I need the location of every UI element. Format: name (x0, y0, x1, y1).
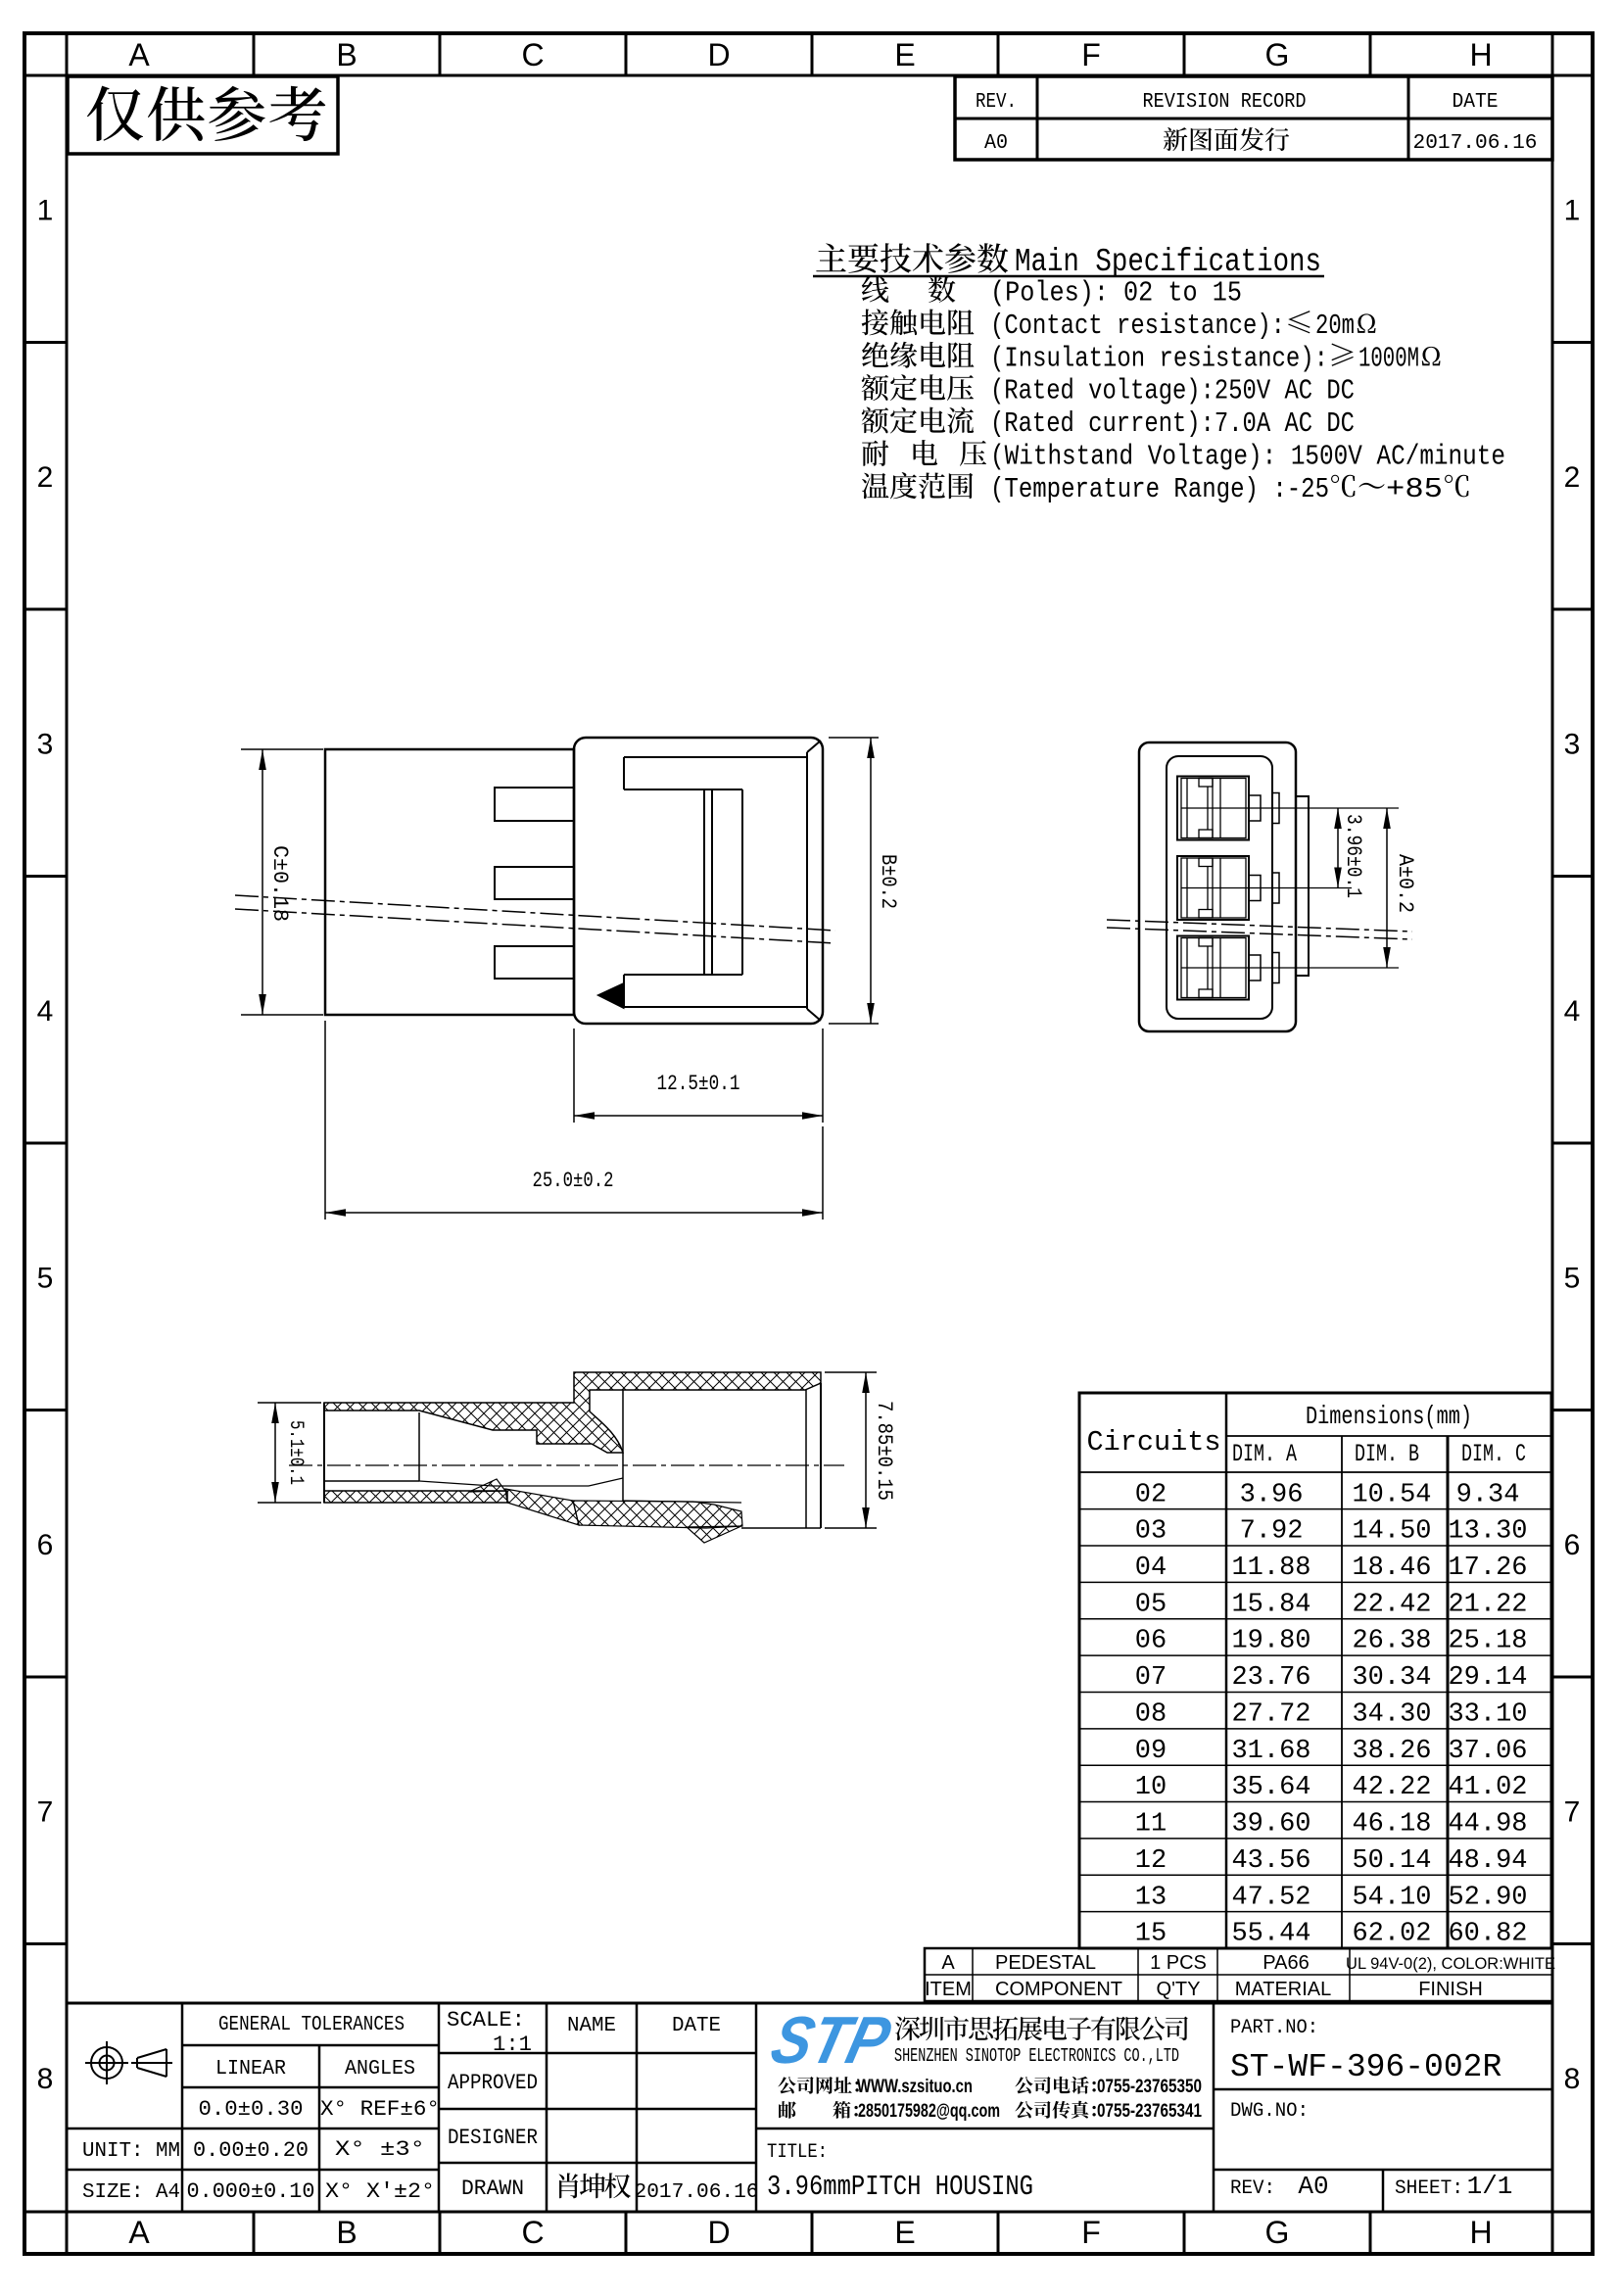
svg-text:2: 2 (37, 461, 54, 494)
svg-text:3: 3 (1564, 728, 1581, 760)
svg-text:G: G (1265, 37, 1290, 72)
svg-text:05: 05 (1135, 1590, 1167, 1619)
svg-text:2017.06.16: 2017.06.16 (1413, 132, 1538, 155)
svg-text:3.96: 3.96 (1240, 1480, 1304, 1509)
svg-text:7.85±0.15: 7.85±0.15 (872, 1401, 896, 1501)
svg-text:25.0±0.2: 25.0±0.2 (533, 1169, 614, 1193)
svg-text:5.1±0.1: 5.1±0.1 (284, 1420, 307, 1485)
svg-text:DWG.NO:: DWG.NO: (1230, 2100, 1309, 2123)
svg-text:62.02: 62.02 (1352, 1920, 1431, 1949)
svg-text:7.92: 7.92 (1240, 1517, 1304, 1547)
svg-text:C±0.18: C±0.18 (267, 845, 292, 922)
svg-text:23.76: 23.76 (1231, 1663, 1310, 1693)
svg-text:SCALE:: SCALE: (447, 2008, 525, 2033)
svg-text:NAME: NAME (567, 2015, 616, 2037)
svg-text:8: 8 (1564, 2063, 1581, 2095)
svg-text:1/1: 1/1 (1467, 2172, 1513, 2201)
svg-text:26.38: 26.38 (1352, 1627, 1431, 1656)
svg-text:COMPONENT: COMPONENT (995, 1979, 1122, 2000)
svg-text:A0: A0 (1298, 2172, 1328, 2201)
svg-text:5: 5 (37, 1262, 54, 1294)
svg-text:35.64: 35.64 (1231, 1773, 1310, 1802)
svg-text:44.98: 44.98 (1448, 1810, 1527, 1840)
svg-text:SHEET:: SHEET: (1395, 2177, 1463, 2200)
svg-text:UL 94V-0(2), COLOR:WHITE: UL 94V-0(2), COLOR:WHITE (1346, 1955, 1555, 1973)
svg-text:02: 02 (1135, 1480, 1167, 1509)
svg-text:30.34: 30.34 (1352, 1663, 1431, 1693)
svg-text:0.000±0.10: 0.000±0.10 (187, 2179, 315, 2204)
svg-text:33.10: 33.10 (1448, 1699, 1527, 1729)
svg-text:ITEM: ITEM (925, 1979, 972, 2000)
svg-text:A: A (128, 37, 150, 72)
svg-text:FINISH: FINISH (1418, 1979, 1483, 2000)
svg-text:DATE: DATE (672, 2015, 721, 2037)
svg-text:F: F (1081, 2215, 1101, 2250)
svg-text:48.94: 48.94 (1448, 1846, 1527, 1876)
svg-text:A±0.2: A±0.2 (1393, 854, 1417, 913)
svg-text:2017.06.16: 2017.06.16 (635, 2181, 759, 2204)
svg-text:7: 7 (1564, 1795, 1581, 1828)
svg-text:39.60: 39.60 (1231, 1810, 1310, 1840)
svg-text:Q'TY: Q'TY (1157, 1979, 1201, 2000)
svg-text:+85: +85 (1386, 473, 1443, 505)
svg-text:14.50: 14.50 (1352, 1517, 1431, 1547)
svg-text:09: 09 (1135, 1737, 1167, 1766)
svg-text:12: 12 (1135, 1846, 1167, 1876)
svg-text:0.00±0.20: 0.00±0.20 (193, 2138, 309, 2163)
svg-text:1:1: 1:1 (493, 2033, 532, 2057)
svg-text:31.68: 31.68 (1231, 1737, 1310, 1766)
svg-text:19.80: 19.80 (1231, 1627, 1310, 1656)
svg-text:H: H (1469, 37, 1492, 72)
svg-text:9.34: 9.34 (1456, 1480, 1520, 1509)
svg-text:0755-23765350: 0755-23765350 (1097, 2077, 1202, 2097)
svg-text:37.06: 37.06 (1448, 1737, 1527, 1766)
svg-text:46.18: 46.18 (1352, 1810, 1431, 1840)
svg-text:10: 10 (1135, 1773, 1167, 1802)
svg-text:1000M: 1000M (1358, 342, 1419, 374)
svg-text:4: 4 (1564, 995, 1581, 1028)
svg-text:04: 04 (1135, 1554, 1167, 1583)
svg-text:D: D (707, 37, 730, 72)
svg-text:1: 1 (1564, 194, 1581, 226)
svg-text:06: 06 (1135, 1627, 1167, 1656)
svg-text:(Rated voltage):250V AC DC: (Rated voltage):250V AC DC (990, 375, 1355, 407)
svg-text:PEDESTAL: PEDESTAL (995, 1952, 1096, 1974)
svg-text:X° REF±6°: X° REF±6° (320, 2097, 440, 2122)
svg-text:13: 13 (1135, 1883, 1167, 1912)
svg-text:38.26: 38.26 (1352, 1737, 1431, 1766)
svg-text:(Rated current):7.0A AC DC: (Rated current):7.0A AC DC (990, 407, 1355, 440)
svg-text:8: 8 (37, 2063, 54, 2095)
svg-text:STP: STP (764, 2002, 898, 2078)
svg-text:11: 11 (1135, 1810, 1167, 1840)
svg-text:SHENZHEN SINOTOP ELECTRONICS C: SHENZHEN SINOTOP ELECTRONICS CO.,LTD (894, 2045, 1179, 2067)
svg-text:A: A (128, 2215, 150, 2250)
svg-text:50.14: 50.14 (1352, 1846, 1431, 1876)
svg-text:TITLE:: TITLE: (767, 2141, 828, 2164)
svg-text:(Insulation resistance):: (Insulation resistance): (990, 342, 1328, 374)
svg-text:6: 6 (37, 1529, 54, 1561)
svg-text:UNIT: MM: UNIT: MM (82, 2140, 180, 2163)
svg-text:WWW.szsituo.cn: WWW.szsituo.cn (857, 2077, 973, 2097)
svg-text:15: 15 (1135, 1920, 1167, 1949)
svg-text:E: E (894, 2215, 915, 2250)
svg-text:B: B (336, 2215, 357, 2250)
svg-text:(Temperature Range) :-25: (Temperature Range) :-25 (990, 473, 1329, 505)
svg-text:PA66: PA66 (1263, 1952, 1309, 1974)
svg-text:18.46: 18.46 (1352, 1554, 1431, 1583)
svg-text:21.22: 21.22 (1448, 1590, 1527, 1619)
svg-text:REV:: REV: (1230, 2177, 1275, 2200)
svg-text:6: 6 (1564, 1529, 1581, 1561)
svg-text:E: E (894, 37, 915, 72)
svg-text:PART.NO:: PART.NO: (1230, 2017, 1318, 2039)
svg-text:DIM. A: DIM. A (1232, 1440, 1297, 1468)
svg-text:DIM. C: DIM. C (1461, 1440, 1526, 1468)
svg-text:2850175982@qq.com: 2850175982@qq.com (858, 2101, 1000, 2122)
svg-text:3: 3 (37, 728, 54, 760)
svg-text:07: 07 (1135, 1663, 1167, 1693)
svg-text:4: 4 (37, 995, 54, 1028)
svg-text:17.26: 17.26 (1448, 1554, 1527, 1583)
svg-text:(Withstand Voltage): 1500V AC/: (Withstand Voltage): 1500V AC/minute (990, 441, 1505, 473)
svg-text:08: 08 (1135, 1699, 1167, 1729)
svg-text:13.30: 13.30 (1448, 1517, 1527, 1547)
svg-text:REVISION RECORD: REVISION RECORD (1143, 91, 1307, 114)
svg-text:0755-23765341: 0755-23765341 (1097, 2101, 1202, 2122)
svg-text:F: F (1081, 37, 1101, 72)
svg-text:DIM. B: DIM. B (1355, 1440, 1419, 1468)
svg-text:APPROVED: APPROVED (448, 2071, 538, 2095)
svg-text:DRAWN: DRAWN (461, 2176, 524, 2201)
svg-text:1: 1 (37, 194, 54, 226)
svg-text:MATERIAL: MATERIAL (1235, 1979, 1332, 2000)
svg-text:20m: 20m (1315, 310, 1355, 342)
svg-text:55.44: 55.44 (1231, 1920, 1310, 1949)
svg-text:2: 2 (1564, 461, 1581, 494)
svg-text:A0: A0 (984, 132, 1008, 155)
svg-text:22.42: 22.42 (1352, 1590, 1431, 1619)
svg-text:3.96±0.1: 3.96±0.1 (1341, 814, 1365, 898)
svg-text:34.30: 34.30 (1352, 1699, 1431, 1729)
svg-text:C: C (521, 2215, 544, 2250)
svg-text:11.88: 11.88 (1231, 1554, 1310, 1583)
svg-text:A: A (941, 1952, 955, 1974)
svg-text:3.96mmPITCH HOUSING: 3.96mmPITCH HOUSING (767, 2171, 1033, 2203)
svg-text:B±0.2: B±0.2 (876, 854, 900, 909)
svg-text:B: B (336, 37, 357, 72)
svg-text:(Poles): 02 to 15: (Poles): 02 to 15 (990, 277, 1242, 310)
svg-text:5: 5 (1564, 1262, 1581, 1294)
svg-text:Circuits: Circuits (1087, 1426, 1221, 1459)
svg-text:60.82: 60.82 (1448, 1920, 1527, 1949)
svg-text:ANGLES: ANGLES (345, 2058, 415, 2081)
svg-text:LINEAR: LINEAR (215, 2058, 286, 2081)
svg-text:52.90: 52.90 (1448, 1883, 1527, 1912)
svg-text:H: H (1469, 2215, 1492, 2250)
svg-text:DATE: DATE (1453, 91, 1499, 114)
svg-text:D: D (707, 2215, 730, 2250)
svg-text:03: 03 (1135, 1517, 1167, 1547)
svg-text:REV.: REV. (976, 91, 1017, 114)
svg-text:(Contact resistance):: (Contact resistance): (990, 310, 1285, 342)
svg-text:Main Specifications: Main Specifications (1015, 244, 1321, 280)
svg-text:1 PCS: 1 PCS (1150, 1952, 1207, 1974)
svg-text:41.02: 41.02 (1448, 1773, 1527, 1802)
svg-text:0.0±0.30: 0.0±0.30 (199, 2097, 304, 2122)
svg-text:29.14: 29.14 (1448, 1663, 1527, 1693)
svg-text:43.56: 43.56 (1231, 1846, 1310, 1876)
svg-text:SIZE: A4: SIZE: A4 (82, 2181, 180, 2204)
svg-text:X° X'±2°: X° X'±2° (325, 2179, 435, 2204)
svg-text:G: G (1265, 2215, 1290, 2250)
svg-text:DESIGNER: DESIGNER (448, 2126, 538, 2150)
svg-text:15.84: 15.84 (1231, 1590, 1310, 1619)
svg-text:GENERAL TOLERANCES: GENERAL TOLERANCES (218, 2014, 405, 2036)
svg-text:12.5±0.1: 12.5±0.1 (657, 1072, 740, 1096)
svg-text:25.18: 25.18 (1448, 1627, 1527, 1656)
svg-text:Dimensions(mm): Dimensions(mm) (1306, 1402, 1472, 1431)
svg-text:C: C (521, 37, 544, 72)
svg-text:10.54: 10.54 (1352, 1480, 1431, 1509)
svg-text:47.52: 47.52 (1231, 1883, 1310, 1912)
svg-text:27.72: 27.72 (1231, 1699, 1310, 1729)
svg-text:7: 7 (37, 1795, 54, 1828)
svg-text:54.10: 54.10 (1352, 1883, 1431, 1912)
svg-text:42.22: 42.22 (1352, 1773, 1431, 1802)
svg-text:ST-WF-396-002R: ST-WF-396-002R (1230, 2049, 1501, 2085)
svg-text:X° ±3°: X° ±3° (335, 2137, 425, 2162)
